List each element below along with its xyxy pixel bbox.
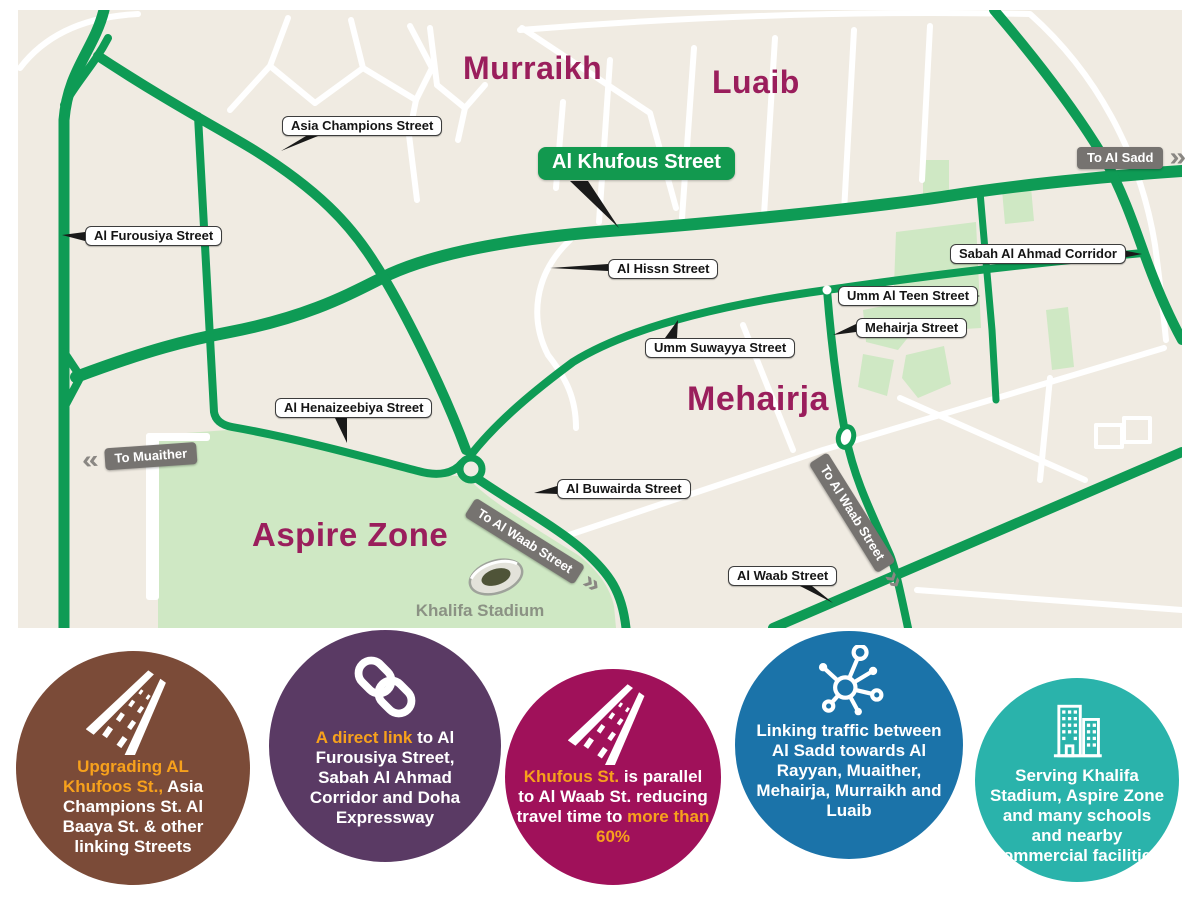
street-label-al-furousiya: Al Furousiya Street <box>85 226 222 246</box>
badge-serving-facilities: Serving Khalifa Stadium, Aspire Zone and… <box>975 678 1179 882</box>
umm-al-teen-node <box>823 286 832 295</box>
badge-text: Upgrading AL Khufoos St., Asia Champions… <box>47 757 219 857</box>
street-label-al-hissn: Al Hissn Street <box>608 259 718 279</box>
badge-text: Serving Khalifa Stadium, Aspire Zone and… <box>987 766 1167 866</box>
buildings-icon <box>1044 698 1110 764</box>
street-label-al-buwairda: Al Buwairda Street <box>557 479 691 499</box>
area-label-mehairja: Mehairja <box>687 380 829 419</box>
oval-junction <box>836 425 856 449</box>
street-label-umm-al-teen: Umm Al Teen Street <box>838 286 978 306</box>
map-canvas: Murraikh Luaib Mehairja Aspire Zone Khal… <box>18 10 1182 628</box>
badge-text: Linking traffic between Al Sadd towards … <box>750 721 948 821</box>
network-icon <box>812 645 886 719</box>
road-icon <box>568 681 658 765</box>
badge-parallel-route: Khufous St. is parallel to Al Waab St. r… <box>505 669 721 885</box>
road-al-furousiya <box>64 10 104 628</box>
badge-text: Khufous St. is parallel to Al Waab St. r… <box>514 767 712 847</box>
street-label-sabah-al-ahmad: Sabah Al Ahmad Corridor <box>950 244 1126 264</box>
badge-text: A direct link to Al Furousiya Street, Sa… <box>291 728 479 828</box>
badge-direct-link: A direct link to Al Furousiya Street, Sa… <box>269 630 501 862</box>
street-label-asia-champions: Asia Champions Street <box>282 116 442 136</box>
area-label-murraikh: Murraikh <box>463 50 602 87</box>
street-label-al-khufous: Al Khufous Street <box>538 147 735 180</box>
direction-box: To Al Sadd <box>1077 147 1163 169</box>
area-label-luaib: Luaib <box>712 64 800 101</box>
badge-upgrading-streets: Upgrading AL Khufoos St., Asia Champions… <box>16 651 250 885</box>
street-label-mehairja-street: Mehairja Street <box>856 318 967 338</box>
street-label-umm-suwayya: Umm Suwayya Street <box>645 338 795 358</box>
badge-linking-traffic: Linking traffic between Al Sadd towards … <box>735 631 963 859</box>
road-vertical-henaizeebiya <box>198 116 462 474</box>
chevron-left-icon: « <box>81 452 99 468</box>
chevron-right-icon: » <box>1169 150 1186 165</box>
road-icon <box>86 667 180 755</box>
infographic-page: Murraikh Luaib Mehairja Aspire Zone Khal… <box>0 0 1200 900</box>
road-umm-al-teen <box>980 192 996 400</box>
road-umm-suwayya <box>470 253 1143 456</box>
link-icon <box>346 648 424 726</box>
road-network-graphic <box>18 10 1182 628</box>
area-label-aspire-zone: Aspire Zone <box>252 516 448 554</box>
khalifa-stadium-label: Khalifa Stadium <box>400 601 560 621</box>
roundabout <box>460 458 482 480</box>
street-label-al-waab: Al Waab Street <box>728 566 837 586</box>
direction-to-al-sadd: To Al Sadd » <box>1077 147 1186 169</box>
street-label-al-henaizeebiya: Al Henaizeebiya Street <box>275 398 432 418</box>
